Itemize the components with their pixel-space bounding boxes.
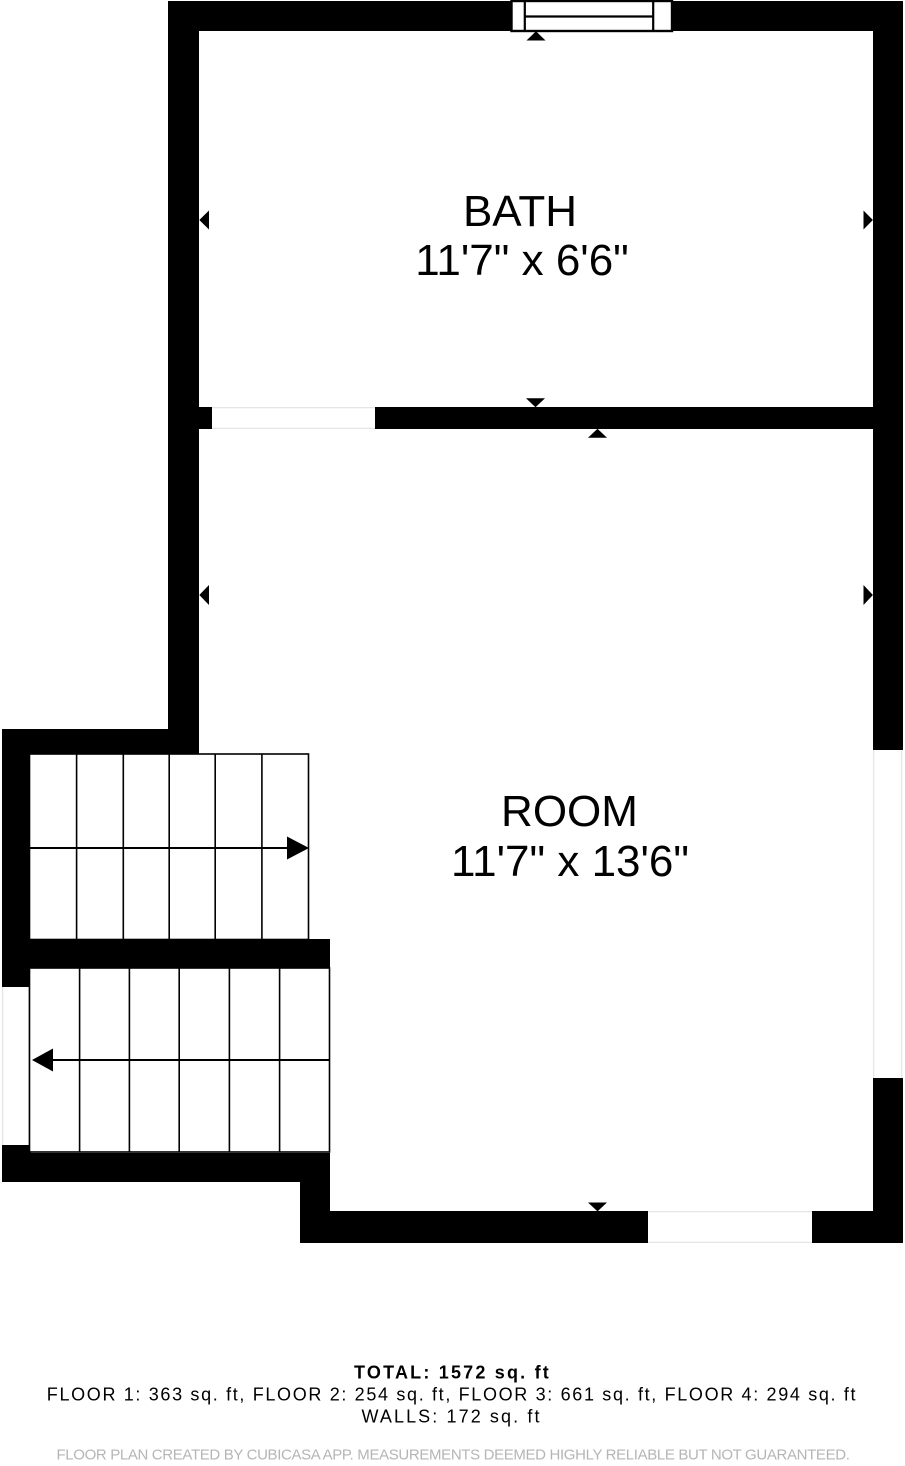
svg-text:TOTAL: 1572 sq. ft: TOTAL: 1572 sq. ft	[354, 1363, 551, 1383]
svg-text:11'7" x 13'6": 11'7" x 13'6"	[451, 837, 689, 886]
svg-text:ROOM: ROOM	[501, 787, 638, 836]
svg-text:BATH: BATH	[463, 187, 577, 236]
svg-text:11'7" x 6'6": 11'7" x 6'6"	[415, 236, 629, 285]
svg-text:FLOOR 1: 363 sq. ft, FLOOR 2:: FLOOR 1: 363 sq. ft, FLOOR 2: 254 sq. ft…	[47, 1385, 857, 1405]
svg-text:FLOOR PLAN CREATED BY CUBICASA: FLOOR PLAN CREATED BY CUBICASA APP. MEAS…	[56, 1446, 849, 1463]
svg-text:WALLS: 172 sq. ft: WALLS: 172 sq. ft	[361, 1406, 541, 1426]
